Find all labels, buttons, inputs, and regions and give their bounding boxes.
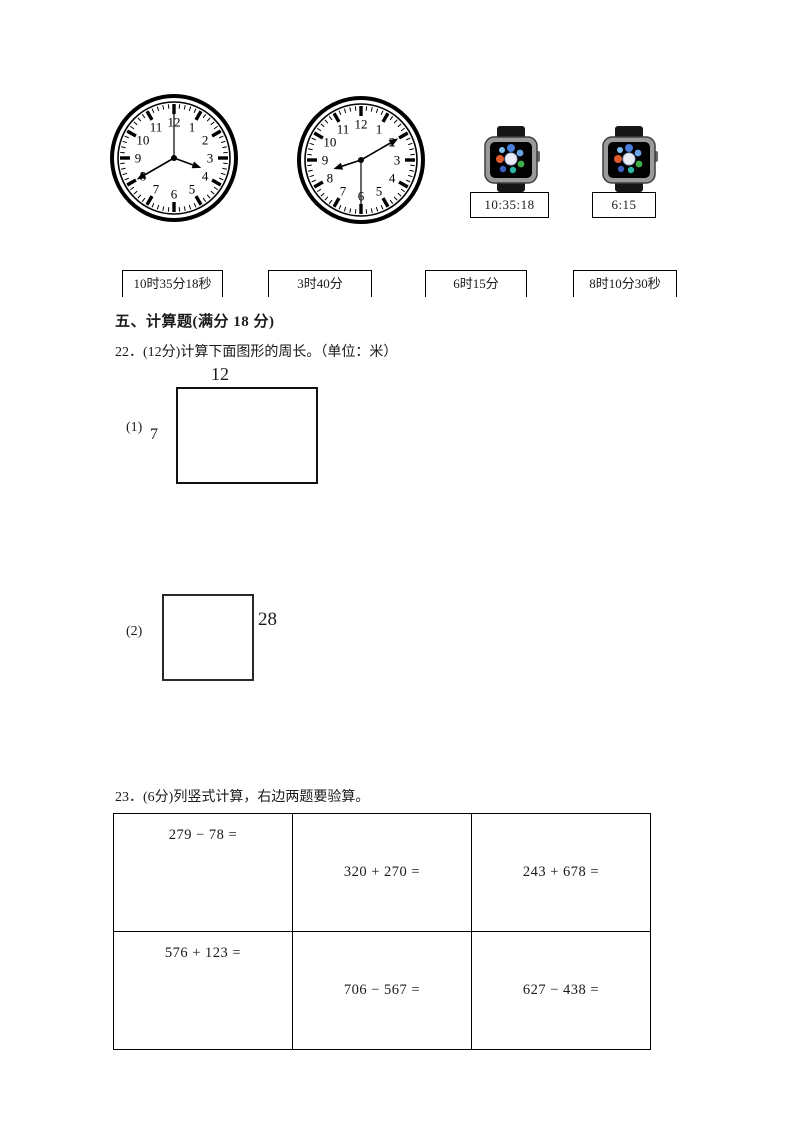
analog-clock-2: 123456789101112: [296, 95, 426, 225]
svg-text:1: 1: [376, 121, 383, 136]
svg-text:3: 3: [394, 153, 401, 168]
figure-1-left-dim: 7: [150, 426, 158, 444]
smartwatch-2: [596, 126, 662, 192]
figure-1-label: (1): [126, 420, 142, 436]
svg-text:11: 11: [150, 119, 163, 134]
svg-text:1: 1: [189, 119, 196, 134]
svg-text:4: 4: [389, 171, 396, 186]
watch-time-display-1: 10:35:18: [470, 192, 549, 218]
answer-box-2: 3时40分: [268, 270, 372, 297]
svg-text:10: 10: [323, 135, 336, 150]
svg-text:8: 8: [327, 171, 334, 186]
figure-2-square: [162, 594, 254, 681]
svg-text:7: 7: [340, 184, 347, 199]
svg-text:5: 5: [189, 182, 196, 197]
watch-time-display-2: 6:15: [592, 192, 656, 218]
watch-time-text-1: 10:35:18: [484, 197, 534, 213]
svg-text:11: 11: [337, 121, 350, 136]
figure-2-label: (2): [126, 624, 142, 640]
section-title: 五、计算题(满分 18 分): [115, 310, 275, 331]
figure-2-right-dim: 28: [258, 609, 277, 631]
worksheet-page: 123456789101112 123456789101112: [0, 0, 793, 1122]
problem-cell-r1c3: 243 + 678 =: [472, 814, 651, 932]
svg-text:2: 2: [202, 133, 209, 148]
figure-1-top-dim: 12: [198, 364, 242, 385]
answer-box-3: 6时15分: [425, 270, 527, 297]
svg-text:10: 10: [136, 133, 149, 148]
problem-cell-r2c1: 576 + 123 =: [114, 932, 293, 1050]
svg-text:9: 9: [135, 151, 142, 166]
answer-box-1: 10时35分18秒: [122, 270, 223, 297]
problem-cell-r2c3: 627 − 438 =: [472, 932, 651, 1050]
problem-cell-r2c2: 706 − 567 =: [293, 932, 472, 1050]
svg-text:3: 3: [207, 151, 214, 166]
svg-text:4: 4: [202, 169, 209, 184]
table-row: 279 − 78 = 320 + 270 = 243 + 678 =: [114, 814, 651, 932]
q23-text: 23．(6分)列竖式计算，右边两题要验算。: [115, 786, 369, 806]
problem-cell-r1c2: 320 + 270 =: [293, 814, 472, 932]
q22-text: 22．(12分)计算下面图形的周长。（单位：米）: [115, 341, 397, 361]
svg-text:5: 5: [376, 184, 383, 199]
table-row: 576 + 123 = 706 − 567 = 627 − 438 =: [114, 932, 651, 1050]
problem-cell-r1c1: 279 − 78 =: [114, 814, 293, 932]
svg-text:12: 12: [355, 117, 368, 132]
svg-text:7: 7: [153, 182, 160, 197]
smartwatch-1: [478, 126, 544, 192]
watch-time-text-2: 6:15: [611, 197, 636, 213]
svg-text:9: 9: [322, 153, 329, 168]
analog-clock-1: 123456789101112: [109, 93, 239, 223]
figure-1-rectangle: [176, 387, 318, 484]
problems-table: 279 − 78 = 320 + 270 = 243 + 678 = 576 +…: [113, 813, 651, 1050]
answer-box-4: 8时10分30秒: [573, 270, 677, 297]
svg-text:6: 6: [171, 187, 178, 202]
